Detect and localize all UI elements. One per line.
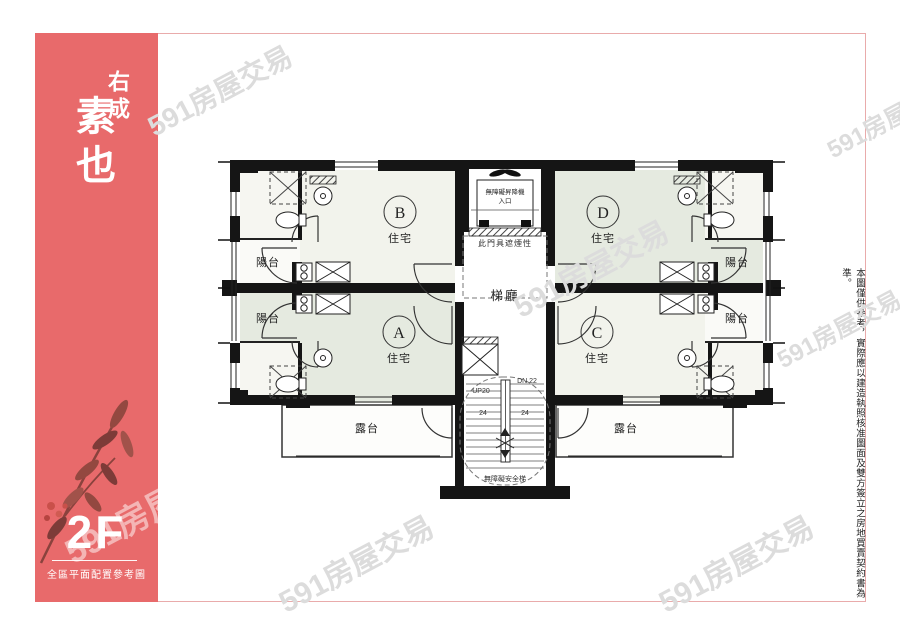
stair-hall-label: 梯廳 xyxy=(490,288,519,303)
balcony-label-upper-left: 陽台 xyxy=(256,255,280,269)
unit-a-type: 住宅 xyxy=(387,351,411,365)
disclaimer-vertical-text: 本圖僅供參考，實際應以建造執照核准圖面及雙方簽立之房地買賣契約書為準。 xyxy=(838,268,866,598)
unit-c-type: 住宅 xyxy=(585,351,609,365)
unit-d-type: 住宅 xyxy=(591,231,615,245)
stair-note: 無障礙安全梯 xyxy=(484,474,526,483)
stair-count-right: 24 xyxy=(521,410,529,417)
unit-d-letter: D xyxy=(597,205,609,222)
unit-b-type: 住宅 xyxy=(388,231,412,245)
elevator-label-line2: 入口 xyxy=(499,197,512,205)
terrace-label-left: 露台 xyxy=(355,421,379,435)
unit-a-letter: A xyxy=(393,325,405,342)
pipe-duct xyxy=(462,337,498,375)
smoke-door-note: 此門具遮煙性 xyxy=(478,238,532,248)
page: 右成 素也 2F 全區平面配置參考圖 xyxy=(0,0,900,635)
unit-b-letter: B xyxy=(395,205,406,222)
stair-down-label: DN 22 xyxy=(517,378,537,385)
stair-up-label: UP20 xyxy=(472,388,490,395)
elevator-label-line1: 無障礙昇降機 xyxy=(486,187,526,196)
stair-count-left: 24 xyxy=(479,410,487,417)
terrace-label-right: 露台 xyxy=(614,421,638,435)
balcony-label-lower-left: 陽台 xyxy=(256,311,280,325)
floor-plan-drawing: 無障礙昇降機 入口 此門具遮煙性 xyxy=(0,0,900,635)
unit-c-letter: C xyxy=(592,325,603,342)
balcony-label-lower-right: 陽台 xyxy=(725,311,749,325)
balcony-label-upper-right: 陽台 xyxy=(725,255,749,269)
